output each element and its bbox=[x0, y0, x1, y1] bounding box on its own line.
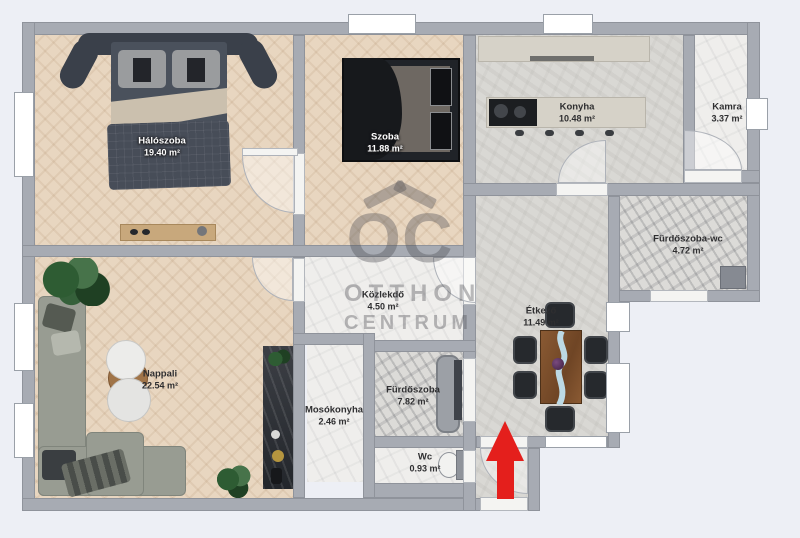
room-label-wc: Wc 0.93 m² bbox=[409, 451, 440, 474]
kitchen-counter-edge bbox=[530, 56, 594, 61]
wall-furdoszoba-wc-divider bbox=[374, 436, 464, 448]
wall-vestibule-right bbox=[528, 448, 540, 511]
dining-chair bbox=[545, 406, 575, 432]
dining-chair bbox=[584, 336, 608, 364]
pillow bbox=[430, 68, 452, 106]
table-decor bbox=[552, 358, 564, 370]
entrance-threshold bbox=[480, 497, 528, 511]
room-label-konyha: Konyha 10.48 m² bbox=[559, 101, 595, 124]
pillow bbox=[430, 112, 452, 150]
window bbox=[746, 98, 768, 130]
watermark-logo: OC bbox=[344, 205, 456, 272]
room-label-szoba: Szoba 11.88 m² bbox=[367, 131, 403, 154]
room-label-furdoszoba: Fürdőszoba 7.82 m² bbox=[386, 384, 440, 407]
room-label-nappali: Nappali 22.54 m² bbox=[142, 368, 178, 391]
watermark-roof-icon bbox=[365, 181, 435, 205]
sideboard-item bbox=[142, 229, 150, 235]
door-furdoszoba-wc bbox=[650, 290, 708, 302]
watermark-otthon-centrum: OC OTTHON CENTRUM bbox=[344, 181, 456, 335]
plant bbox=[40, 258, 110, 306]
watermark-line1: OTTHON bbox=[344, 280, 456, 308]
sideboard-item bbox=[130, 229, 138, 235]
entrance-arrow-icon bbox=[486, 421, 524, 461]
door-kamra bbox=[684, 170, 742, 183]
door-wc bbox=[463, 450, 476, 483]
dining-chair bbox=[584, 371, 608, 399]
console-item bbox=[271, 430, 280, 439]
coffee-table-white bbox=[106, 340, 146, 380]
washing-machine bbox=[720, 266, 746, 289]
room-label-haloszoba: Hálószoba 19.40 m² bbox=[138, 135, 186, 158]
door-nappali bbox=[293, 258, 305, 302]
cooktop-burner bbox=[494, 104, 508, 118]
window bbox=[348, 14, 416, 34]
console-item bbox=[271, 468, 282, 484]
window bbox=[14, 403, 34, 458]
wall-right bbox=[747, 22, 760, 302]
entrance-arrow-shaft bbox=[497, 460, 514, 499]
sideboard-lamp bbox=[197, 226, 207, 236]
console-item bbox=[272, 450, 284, 462]
wall-furdoszoba-top bbox=[374, 340, 476, 352]
cooktop-burner bbox=[514, 106, 526, 118]
dining-chair bbox=[513, 336, 537, 364]
watermark-line2: CENTRUM bbox=[344, 312, 456, 335]
dining-chair bbox=[513, 371, 537, 399]
bar-stool bbox=[515, 130, 524, 136]
bar-stool bbox=[545, 130, 554, 136]
room-label-kamra: Kamra 3.37 m² bbox=[711, 101, 742, 124]
window bbox=[14, 303, 34, 371]
room-label-etkezo: Étkező 11.49 m² bbox=[523, 305, 559, 328]
window bbox=[606, 302, 630, 332]
floor-plan: Hálószoba 19.40 m² Szoba 11.88 m² Konyha… bbox=[0, 0, 800, 538]
plant bbox=[214, 464, 254, 498]
plant bbox=[265, 347, 291, 371]
wall-wc-bottom bbox=[374, 483, 464, 498]
window bbox=[543, 14, 593, 34]
room-label-mosokonyha: Mosókonyha 2.46 m² bbox=[305, 404, 363, 427]
door-konyha bbox=[556, 183, 608, 196]
pillow-accent bbox=[133, 58, 151, 82]
door-furdoszoba bbox=[463, 358, 476, 422]
window bbox=[545, 436, 607, 448]
bar-stool bbox=[575, 130, 584, 136]
window bbox=[606, 363, 630, 433]
bar-stool bbox=[605, 130, 614, 136]
door-leaf-furdoszoba bbox=[454, 360, 462, 420]
window bbox=[14, 92, 34, 177]
wall-mosokonyha-right bbox=[363, 333, 375, 498]
wall-konyha-bottom bbox=[463, 183, 760, 196]
pillow-accent bbox=[187, 58, 205, 82]
room-label-furdoszoba-wc: Fürdőszoba-wc 4.72 m² bbox=[653, 233, 723, 256]
